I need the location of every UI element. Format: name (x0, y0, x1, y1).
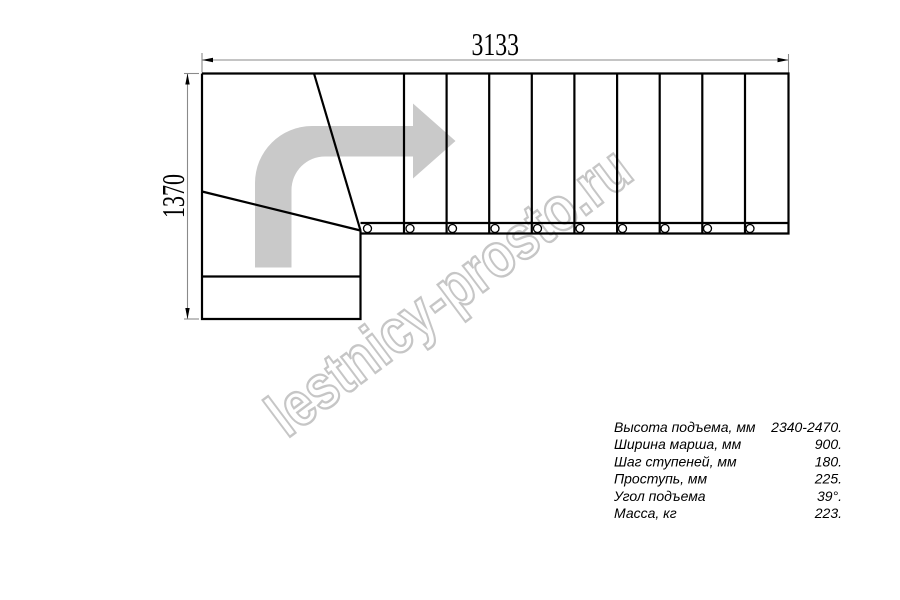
svg-text:223.: 223. (814, 505, 842, 521)
svg-text:225.: 225. (814, 471, 842, 487)
svg-text:Угол подъема: Угол подъема (613, 488, 706, 504)
svg-text:3133: 3133 (472, 26, 520, 62)
svg-text:900.: 900. (815, 436, 842, 452)
svg-text:Ширина марша, мм: Ширина марша, мм (614, 436, 742, 452)
svg-text:Проступь, мм: Проступь, мм (614, 471, 708, 487)
svg-text:Высота подъема, мм: Высота подъема, мм (614, 419, 756, 435)
svg-text:39°.: 39°. (817, 488, 842, 504)
svg-text:1370: 1370 (155, 174, 191, 218)
svg-text:180.: 180. (815, 453, 842, 469)
svg-text:2340-2470.: 2340-2470. (770, 419, 842, 435)
svg-text:Масса, кг: Масса, кг (614, 505, 677, 521)
svg-text:Шаг ступеней, мм: Шаг ступеней, мм (614, 453, 737, 469)
